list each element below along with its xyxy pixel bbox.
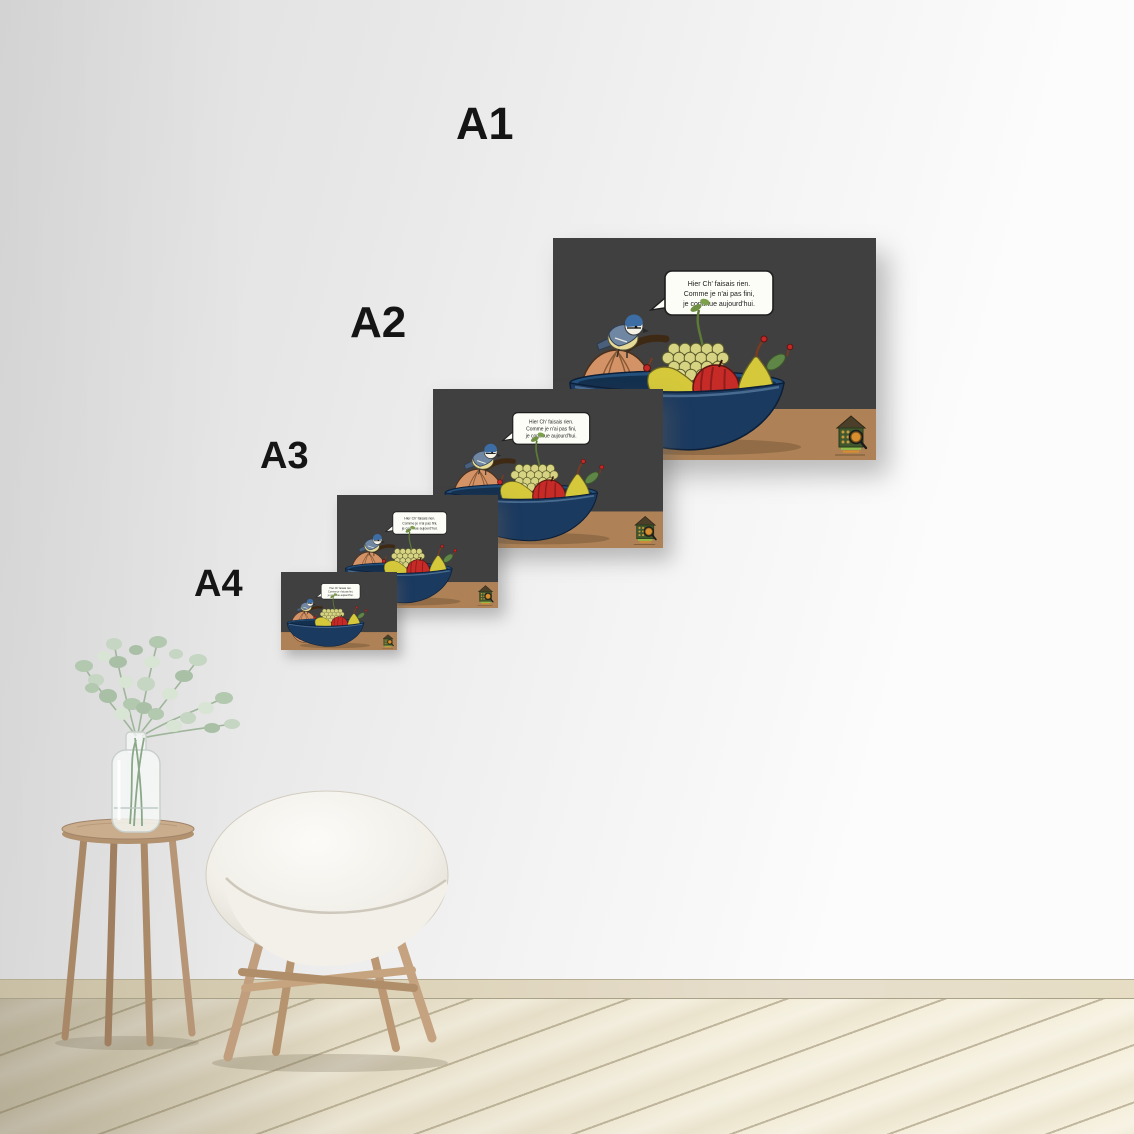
plant-leaves <box>75 636 240 733</box>
poster-size-mockup-scene: A1 A2 A3 A4 Hier Ch' faisais rien. Comme… <box>0 0 1134 1134</box>
chair-shadow <box>212 1054 448 1072</box>
speech-bubble-line3: je continue aujourd'hui. <box>401 527 438 531</box>
size-label-a4: A4 <box>194 565 243 603</box>
speech-bubble: Hier Ch' faisais rien. Comme je n'ai pas… <box>503 413 590 445</box>
poster-artwork: Hier Ch' faisais rien. Comme je n'ai pas… <box>281 572 397 650</box>
speech-bubble-line2: Comme je n'ai pas fini, <box>684 291 755 298</box>
size-label-a3: A3 <box>260 437 309 475</box>
speech-bubble-line1: Hier Ch' faisais rien. <box>688 281 750 288</box>
stool-shadow <box>55 1036 199 1050</box>
poster-a4: Hier Ch' faisais rien. Comme je n'ai pas… <box>281 572 397 650</box>
armchair <box>200 780 455 1072</box>
cherry <box>498 480 503 485</box>
cherry <box>382 559 385 562</box>
cherry <box>314 616 316 618</box>
size-label-a2: A2 <box>350 301 406 345</box>
speech-bubble-line1: Hier Ch' faisais rien. <box>329 587 352 590</box>
speech-bubble: Hier Ch' faisais rien. Comme je n'ai pas… <box>316 584 360 599</box>
speech-bubble-line1: Hier Ch' faisais rien. <box>404 516 435 520</box>
speech-bubble-line2: Comme je n'ai pas fini, <box>402 521 437 525</box>
cherry <box>644 365 651 372</box>
speech-bubble-line2: Comme je n'ai pas fini, <box>328 590 353 593</box>
speech-bubble: Hier Ch' faisais rien. Comme je n'ai pas… <box>386 512 447 534</box>
speech-bubble-line2: Comme je n'ai pas fini, <box>526 427 576 433</box>
speech-bubble: Hier Ch' faisais rien. Comme je n'ai pas… <box>651 271 773 315</box>
glass-vase <box>112 732 160 832</box>
stool-legs <box>65 837 192 1043</box>
size-label-a1: A1 <box>456 101 514 146</box>
speech-bubble-line1: Hier Ch' faisais rien. <box>529 419 573 425</box>
